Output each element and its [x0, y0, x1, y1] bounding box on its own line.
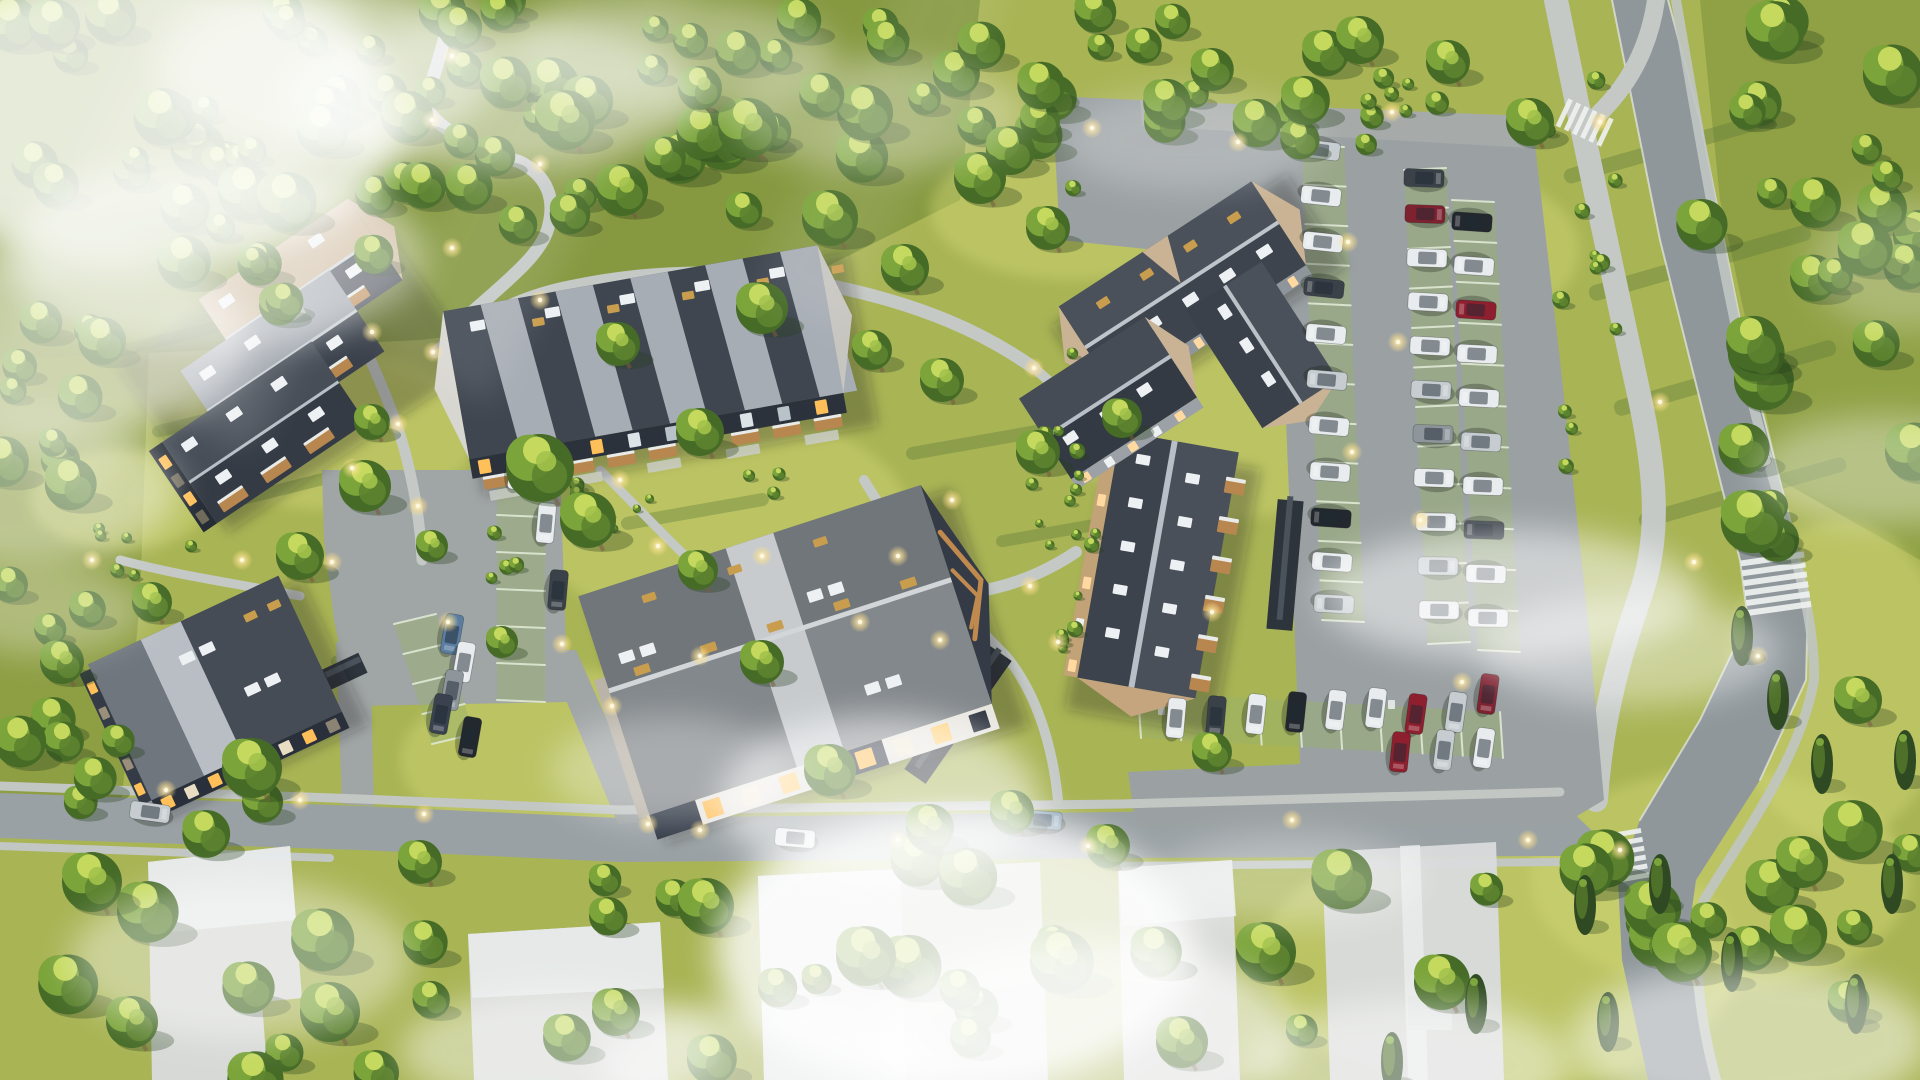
tree-highlight	[1047, 541, 1051, 545]
tree-highlight	[131, 570, 136, 575]
tree-highlight	[7, 718, 28, 739]
tree-highlight	[1071, 622, 1077, 628]
tree-highlight	[1094, 35, 1105, 46]
fog-patch	[1480, 595, 1780, 705]
street-lamp	[1334, 228, 1362, 256]
street-lamp	[384, 410, 412, 438]
tree-highlight	[1076, 592, 1080, 596]
tree-highlight	[370, 413, 381, 424]
tree-highlight	[1593, 262, 1598, 267]
tree-highlight	[1527, 110, 1541, 124]
car-cabin	[1437, 741, 1451, 761]
car-cabin	[1477, 738, 1492, 758]
street-lamp	[644, 532, 672, 560]
car-windshield	[1439, 253, 1444, 264]
car-windshield	[1440, 297, 1445, 308]
lamp-light	[938, 638, 942, 642]
lamp-light	[446, 620, 450, 624]
tree-highlight	[1067, 496, 1072, 501]
street-lamp	[318, 548, 346, 576]
tree-highlight	[1073, 444, 1079, 450]
street-lamp	[1378, 98, 1406, 126]
fog-patch	[730, 60, 1030, 170]
lamp-light	[760, 554, 764, 558]
car-windshield	[551, 601, 562, 607]
lamp-light	[1598, 120, 1602, 124]
tree-highlight	[1561, 405, 1567, 411]
tree-highlight	[411, 164, 430, 183]
tree-highlight	[110, 726, 123, 739]
tree-highlight	[1740, 318, 1762, 340]
car-cabin	[1313, 235, 1333, 249]
car-windshield	[1446, 473, 1451, 484]
car-cabin	[1316, 327, 1335, 341]
tree-highlight	[85, 759, 102, 776]
tree-highlight	[939, 369, 952, 382]
car-windshield	[1436, 173, 1441, 184]
car-cabin	[1473, 480, 1492, 493]
lamp-light	[240, 558, 244, 562]
pine-tip	[1579, 879, 1587, 887]
car-windshield	[1466, 480, 1471, 491]
tree-highlight	[599, 899, 614, 914]
lamp-light	[1056, 640, 1060, 644]
lamp-light	[1350, 450, 1354, 454]
tree-highlight	[759, 651, 772, 664]
car-cabin	[1464, 259, 1483, 272]
tree-highlight	[1135, 29, 1149, 43]
lamp-light	[1692, 560, 1696, 564]
window	[777, 406, 791, 422]
tree-highlight	[1076, 471, 1080, 475]
tree-highlight	[665, 881, 680, 896]
tree-highlight	[1037, 520, 1040, 523]
tree-highlight	[647, 495, 651, 499]
tree-highlight	[1093, 529, 1097, 533]
lamp-light	[416, 504, 420, 508]
car-cabin	[1462, 215, 1481, 228]
street-lamp	[1016, 572, 1044, 600]
car-cabin	[1424, 428, 1443, 441]
tree-highlight	[1573, 846, 1595, 868]
tree-highlight	[1293, 78, 1313, 98]
tree-highlight	[1210, 742, 1222, 754]
lamp-light	[350, 466, 354, 470]
window	[740, 412, 754, 428]
tree-highlight	[500, 634, 510, 644]
tree-highlight	[513, 558, 519, 564]
tree-highlight	[735, 193, 750, 208]
pine-tip	[1816, 738, 1824, 746]
street-lamp	[1044, 628, 1072, 656]
fog-patch	[5, 160, 425, 350]
car-cabin	[1311, 189, 1331, 203]
tree-highlight	[188, 541, 193, 546]
lamp-light	[858, 620, 862, 624]
tree-highlight	[1731, 425, 1751, 445]
lamp-light	[1028, 584, 1032, 588]
tree-highlight	[1597, 255, 1604, 262]
car-cabin	[1421, 339, 1440, 352]
car-cabin	[1415, 172, 1434, 185]
tree-highlight	[1569, 423, 1574, 428]
pine-tip	[1726, 936, 1734, 944]
tree-highlight	[1379, 69, 1387, 77]
tree-highlight	[1902, 835, 1917, 850]
tree-highlight	[150, 592, 162, 604]
lamp-light	[1658, 400, 1662, 404]
car-windshield	[1448, 517, 1453, 528]
street-lamp	[1384, 328, 1412, 356]
tree-highlight	[1445, 51, 1458, 64]
lamp-light	[422, 812, 426, 816]
lamp-light	[656, 544, 660, 548]
car-cabin	[1320, 465, 1339, 478]
street-lamp	[152, 776, 180, 804]
tree-highlight	[1314, 32, 1333, 51]
car-windshield	[1310, 373, 1316, 384]
car-windshield	[539, 534, 550, 540]
street-lamp	[846, 608, 874, 636]
car-cabin	[1416, 208, 1435, 221]
pine-tip	[1654, 858, 1662, 866]
tree-highlight	[1784, 907, 1807, 930]
fog-patch	[550, 715, 790, 825]
street-lamp	[748, 542, 776, 570]
street-lamp	[1646, 388, 1674, 416]
car-cabin	[551, 581, 565, 600]
car-cabin	[1169, 709, 1183, 728]
window	[590, 439, 604, 455]
tree-highlight	[1592, 251, 1596, 255]
fog-patch	[70, 880, 410, 1040]
pine-tip	[1886, 858, 1894, 866]
tree-highlight	[1164, 5, 1178, 19]
car-cabin	[1249, 705, 1263, 725]
tree-highlight	[1073, 484, 1078, 489]
lamp-light	[1032, 366, 1036, 370]
site-plan-rendering	[0, 0, 1920, 1080]
car-windshield	[1315, 555, 1321, 566]
scene-layers	[0, 0, 1920, 1080]
tree-highlight	[417, 851, 430, 864]
car-cabin	[1481, 684, 1496, 704]
tree-highlight	[1557, 292, 1564, 299]
pine-tip	[1470, 978, 1478, 986]
lamp-light	[618, 478, 622, 482]
street-lamp	[926, 626, 954, 654]
car-windshield	[1462, 392, 1467, 403]
car-windshield	[1457, 259, 1463, 270]
lamp-light	[164, 788, 168, 792]
tree-highlight	[746, 470, 751, 475]
street-lamp	[1278, 806, 1306, 834]
tree-highlight	[1846, 911, 1860, 925]
street-lamp	[286, 786, 314, 814]
tree-highlight	[1878, 47, 1902, 71]
car-windshield	[1312, 419, 1318, 430]
car-windshield	[1314, 511, 1320, 522]
street-lamp	[1338, 438, 1366, 466]
tree-highlight	[1765, 179, 1777, 191]
tree-highlight	[248, 753, 266, 771]
tree-highlight	[430, 538, 440, 548]
car-cabin	[1466, 303, 1485, 316]
tree-highlight	[697, 420, 711, 434]
tree-highlight	[788, 0, 806, 18]
tree-highlight	[655, 138, 672, 155]
tree-highlight	[1592, 72, 1599, 79]
tree-highlight	[703, 892, 720, 909]
lamp-light	[396, 422, 400, 426]
window	[627, 432, 641, 448]
lamp-light	[950, 498, 954, 502]
lamp-light	[896, 554, 900, 558]
tree-highlight	[422, 982, 437, 997]
street-lamp	[1448, 668, 1476, 696]
tree-highlight	[1612, 174, 1618, 180]
fog-patch	[1060, 90, 1320, 190]
street-lamp	[1406, 506, 1434, 534]
car-windshield	[1460, 348, 1465, 359]
lamp-light	[610, 704, 614, 708]
tree-highlight	[1760, 3, 1784, 27]
tree-highlight	[362, 473, 378, 489]
car-windshield	[1459, 303, 1465, 314]
tree-highlight	[489, 573, 494, 578]
tree-highlight	[1029, 64, 1048, 83]
tree-highlight	[1262, 937, 1280, 955]
tree-highlight	[771, 487, 776, 492]
street-lamp	[1020, 354, 1048, 382]
lamp-light	[330, 560, 334, 564]
lamp-light	[370, 330, 374, 334]
street-lamp	[410, 800, 438, 828]
car-cabin	[1419, 295, 1438, 308]
street-lamp	[228, 546, 256, 574]
lamp-light	[1290, 818, 1294, 822]
car-windshield	[1169, 729, 1180, 735]
lamp-light	[298, 798, 302, 802]
street-lamp	[404, 492, 432, 520]
tree-highlight	[491, 526, 497, 532]
tree-highlight	[902, 256, 916, 270]
tree-highlight	[1074, 530, 1078, 534]
tree-highlight	[1678, 937, 1696, 955]
fog-patch	[1160, 835, 1420, 925]
car-cabin	[1314, 281, 1334, 295]
tree-highlight	[1799, 849, 1815, 865]
tree-highlight	[297, 544, 311, 558]
tree-highlight	[1201, 50, 1218, 67]
car-cabin	[1469, 391, 1488, 404]
street-lamp	[686, 642, 714, 670]
car-cabin	[1409, 704, 1424, 724]
street-lamp	[1198, 598, 1226, 626]
car-cabin	[539, 514, 553, 533]
tree-highlight	[776, 468, 781, 473]
tree-highlight	[1088, 538, 1094, 544]
lamp-light	[1210, 610, 1214, 614]
tree-highlight	[1855, 688, 1869, 702]
tree-highlight	[597, 865, 610, 878]
car-cabin	[1317, 373, 1336, 387]
car-windshield	[1455, 215, 1461, 226]
street-lamp	[338, 454, 366, 482]
car-cabin	[1393, 743, 1407, 763]
street-lamp	[598, 692, 626, 720]
tree-highlight	[585, 506, 602, 523]
tree-highlight	[1056, 426, 1060, 430]
tree-highlight	[1880, 162, 1892, 174]
street-lamp	[1586, 108, 1614, 136]
car-cabin	[1418, 252, 1437, 265]
tree-highlight	[1045, 217, 1058, 230]
tree-highlight	[1738, 95, 1753, 110]
lamp-light	[1460, 680, 1464, 684]
tree-highlight	[615, 333, 628, 346]
tree-highlight	[42, 699, 60, 717]
tree-highlight	[1737, 492, 1762, 517]
lamp-light	[1346, 240, 1350, 244]
lamp-light	[90, 558, 94, 562]
car-windshield	[1442, 341, 1447, 352]
tree-highlight	[1741, 928, 1759, 946]
tree-highlight	[1405, 79, 1410, 84]
lamp-light	[1390, 110, 1394, 114]
tree-highlight	[1070, 348, 1075, 353]
tree-highlight	[114, 564, 120, 570]
car-cabin	[1329, 701, 1343, 721]
tree-highlight	[414, 922, 432, 940]
tree-highlight	[365, 1052, 383, 1070]
street-lamp	[606, 466, 634, 494]
tree-highlight	[1478, 874, 1491, 887]
car-cabin	[1467, 347, 1486, 360]
tree-highlight	[1365, 94, 1371, 100]
tree-highlight	[1689, 201, 1709, 221]
street-lamp	[1606, 836, 1634, 864]
car-cabin	[1449, 702, 1464, 722]
car-windshield	[1443, 385, 1448, 396]
tree-highlight	[536, 451, 556, 471]
window	[478, 458, 492, 474]
car-cabin	[1322, 555, 1341, 568]
car-cabin	[1369, 699, 1383, 719]
tree-highlight	[241, 1054, 263, 1076]
accessible-stall-mark	[1388, 700, 1395, 709]
lamp-light	[1418, 518, 1422, 522]
lamp-light	[560, 642, 564, 646]
tree-highlight	[635, 505, 638, 508]
tree-highlight	[503, 560, 509, 566]
tree-highlight	[88, 867, 106, 885]
car-windshield	[1445, 429, 1450, 440]
tree-highlight	[1579, 204, 1585, 210]
street-lamp	[884, 542, 912, 570]
lamp-light	[698, 654, 702, 658]
car-cabin	[1321, 511, 1340, 524]
car-windshield	[1309, 327, 1315, 338]
tree-highlight	[619, 177, 635, 193]
tree-highlight	[194, 812, 213, 831]
tree-highlight	[1361, 135, 1370, 144]
lamp-light	[1396, 340, 1400, 344]
car-cabin	[1471, 435, 1490, 448]
tree-highlight	[870, 340, 882, 352]
tree-highlight	[1431, 92, 1440, 101]
tree-highlight	[977, 165, 993, 181]
tree-highlight	[1859, 135, 1871, 147]
street-lamp	[434, 608, 462, 636]
lamp-light	[1618, 848, 1622, 852]
car-cabin	[140, 805, 160, 820]
car-windshield	[1464, 436, 1469, 447]
tree-highlight	[1388, 87, 1394, 93]
tree-highlight	[1120, 408, 1132, 420]
tree-highlight	[1357, 28, 1371, 42]
car-cabin	[1289, 703, 1303, 723]
tree-highlight	[1562, 459, 1568, 465]
tree-highlight	[1613, 323, 1618, 328]
tree-highlight	[54, 723, 70, 739]
tree-highlight	[1029, 478, 1034, 483]
pine-tip	[1899, 734, 1907, 742]
lamp-light	[698, 828, 702, 832]
tree-highlight	[1439, 968, 1456, 985]
pine-tip	[1772, 674, 1780, 682]
car-cabin	[1422, 383, 1441, 396]
aerial-render-canvas	[0, 0, 1920, 1080]
window	[814, 399, 828, 415]
car-windshield	[1437, 209, 1442, 220]
tree-highlight	[696, 560, 708, 572]
tree-highlight	[1700, 904, 1715, 919]
lamp-light	[1526, 838, 1530, 842]
tree-highlight	[1035, 441, 1048, 454]
car-cabin	[1319, 419, 1338, 433]
street-lamp	[938, 486, 966, 514]
car-windshield	[1313, 465, 1319, 476]
car-cabin	[1209, 707, 1223, 726]
street-lamp	[1514, 826, 1542, 854]
tree-highlight	[1838, 803, 1862, 827]
tree-highlight	[1069, 181, 1075, 187]
car-cabin	[1425, 472, 1444, 485]
tree-highlight	[1803, 179, 1823, 199]
street-lamp	[548, 630, 576, 658]
